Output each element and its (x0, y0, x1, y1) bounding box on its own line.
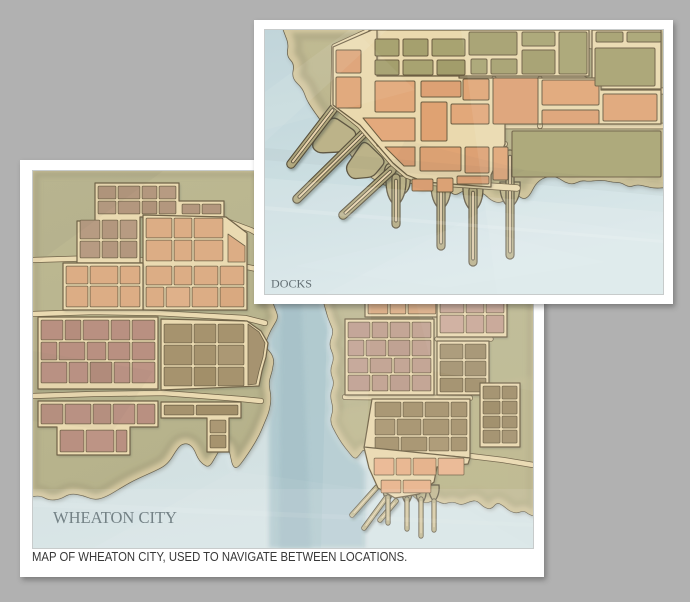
svg-text:DOCKS: DOCKS (271, 279, 312, 291)
svg-text:WHEATON CITY: WHEATON CITY (53, 508, 177, 527)
